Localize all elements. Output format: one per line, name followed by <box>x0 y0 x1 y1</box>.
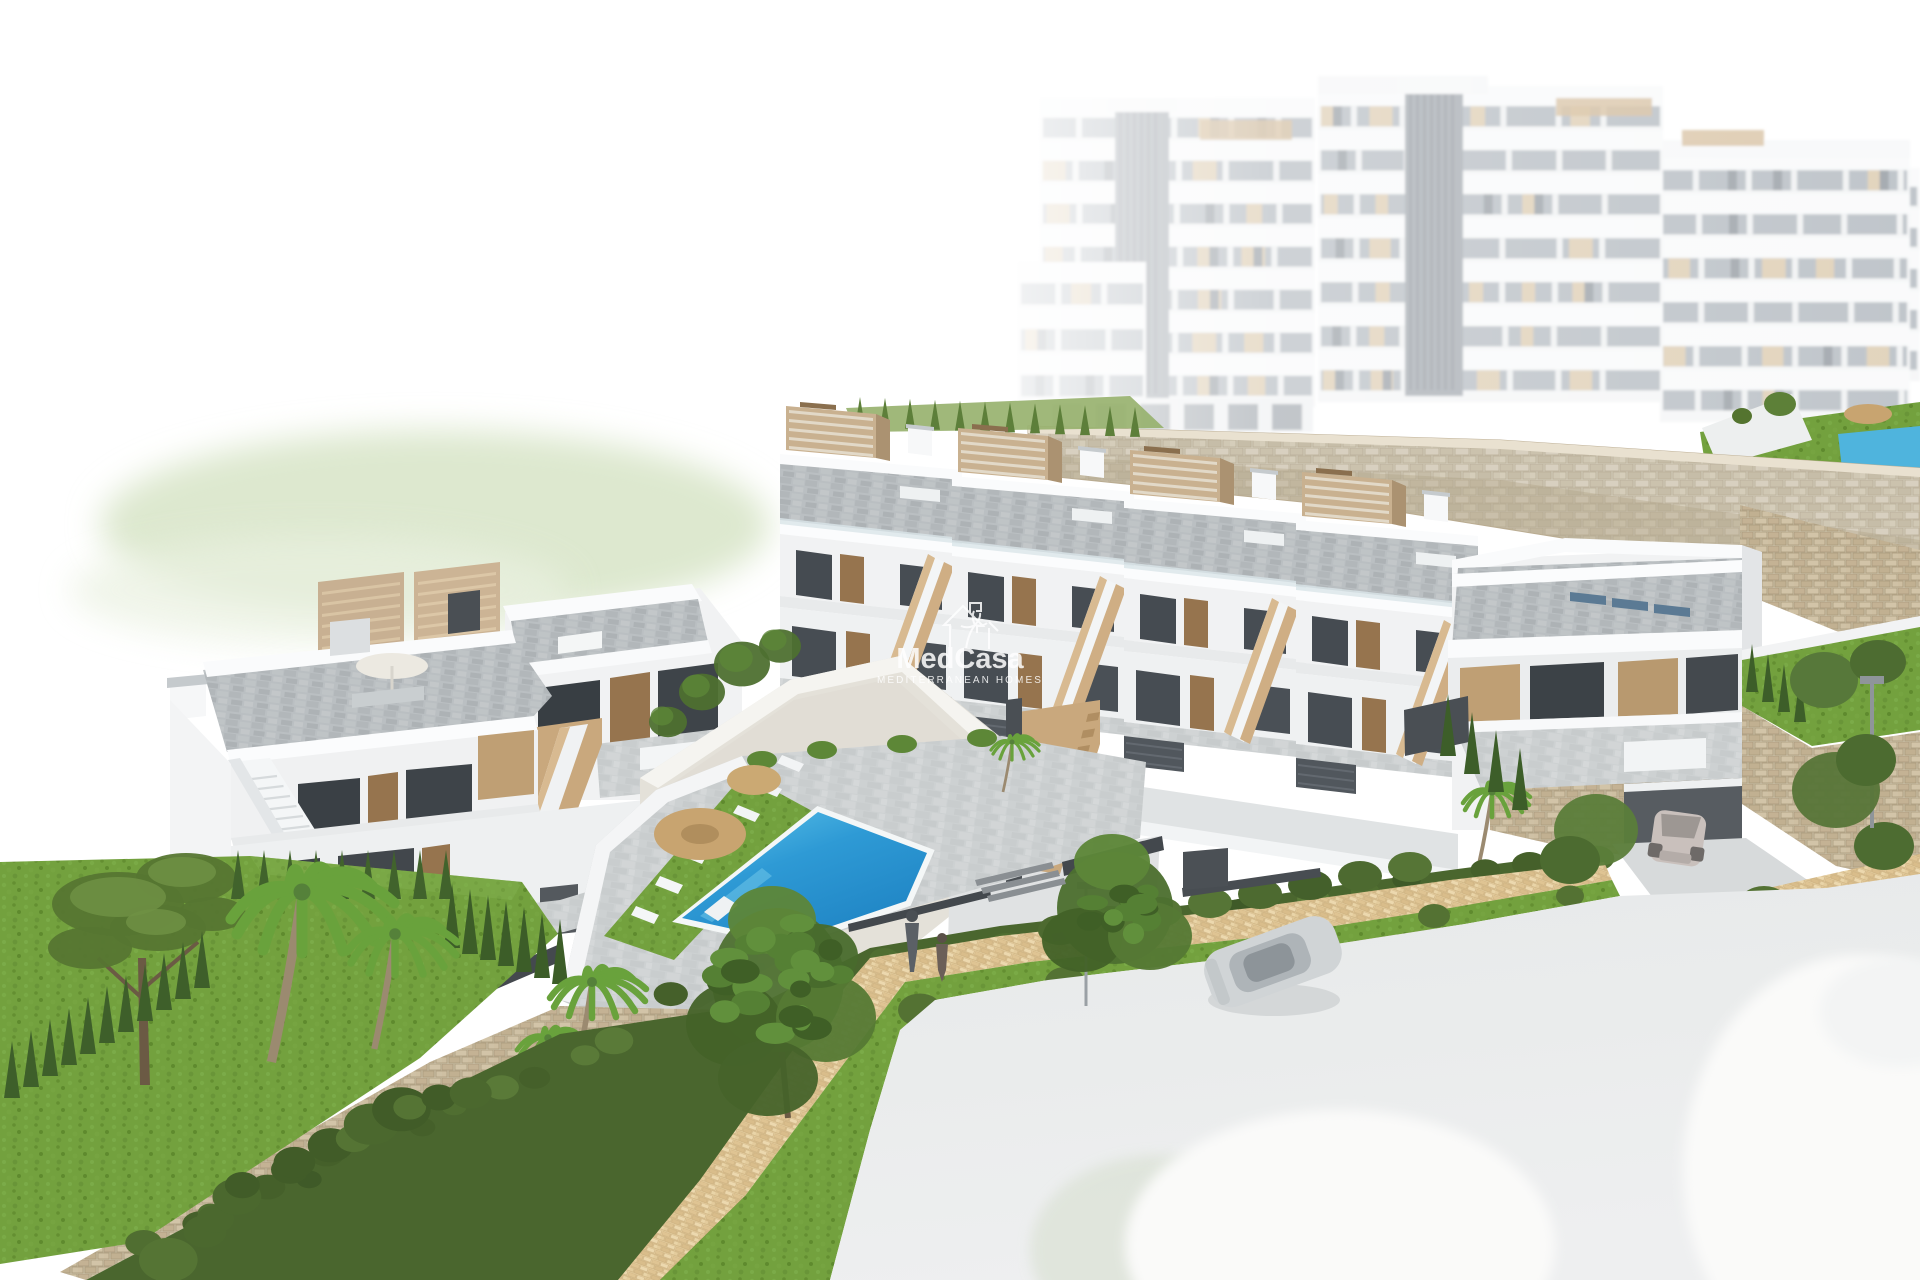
svg-text:MedCasa: MedCasa <box>896 643 1024 675</box>
svg-text:MEDITERRANEAN HOMES: MEDITERRANEAN HOMES <box>877 675 1043 686</box>
